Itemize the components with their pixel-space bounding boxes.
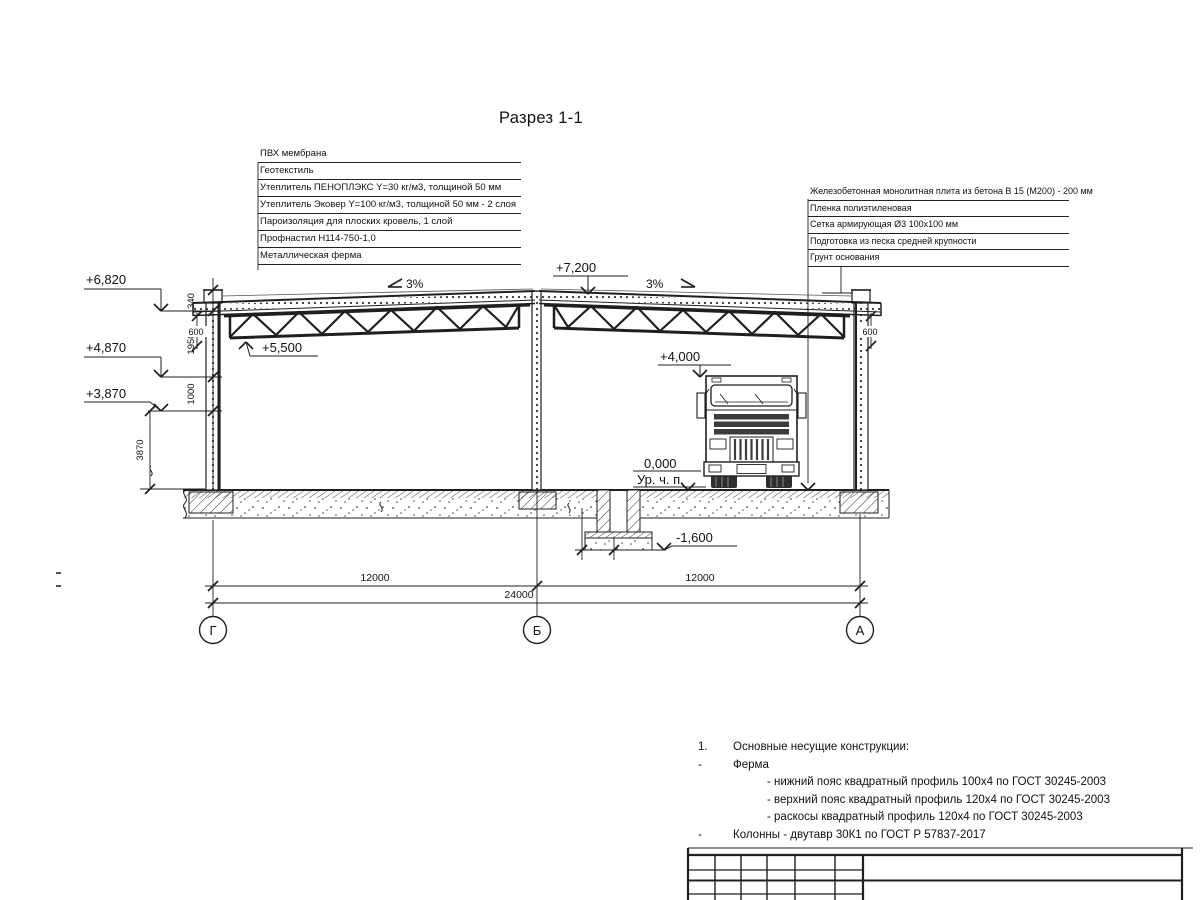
truck-license-plate bbox=[737, 465, 766, 474]
floor-layer-label: Железобетонная монолитная плита из бетон… bbox=[808, 184, 1069, 201]
dim-600-right: 600 bbox=[862, 327, 877, 337]
dim-1000: 1000 bbox=[186, 383, 197, 404]
roof-layer-label: Профнастил Н114-750-1,0 bbox=[258, 231, 521, 248]
floor-layers-callout: Железобетонная монолитная плита из бетон… bbox=[808, 184, 1069, 267]
elevation-ridge: +7,200 bbox=[556, 260, 596, 275]
elevation-pit-bottom: -1,600 bbox=[676, 530, 713, 545]
elevation-floor-zero: 0,000 bbox=[644, 456, 677, 471]
note-sub-top-chord: - верхний пояс квадратный профиль 120х4 … bbox=[698, 792, 1178, 810]
note-sub-braces: - раскосы квадратный профиль 120х4 по ГО… bbox=[698, 809, 1178, 827]
drawing-sheet: +6,820 +4,870 +3,870 +7,200 +5,500 +4,00… bbox=[0, 0, 1200, 900]
note-dash: - bbox=[698, 827, 733, 845]
slope-right-label: 3% bbox=[646, 277, 664, 291]
floor-layer-label: Грунт основания bbox=[808, 250, 1069, 267]
note-number: 1. bbox=[698, 739, 733, 757]
truss-left bbox=[224, 305, 530, 338]
dim-span-right: 12000 bbox=[685, 572, 714, 584]
elevation-parapet-left: +6,820 bbox=[86, 272, 126, 287]
axis-label-b: Б bbox=[533, 623, 542, 638]
axis-label-a: А bbox=[856, 623, 865, 638]
page-title: Разрез 1-1 bbox=[499, 109, 583, 128]
dim-3870: 3870 bbox=[135, 439, 146, 460]
note-heading: Основные несущие конструкции: bbox=[733, 739, 909, 757]
notes-block: 1. Основные несущие конструкции: - Ферма… bbox=[698, 739, 1178, 844]
title-block bbox=[688, 848, 1193, 900]
note-item-truss: Ферма bbox=[733, 757, 769, 775]
note-sub-bottom-chord: - нижний пояс квадратный профиль 100х4 п… bbox=[698, 774, 1178, 792]
stray-mark-2 bbox=[56, 585, 61, 587]
roof-layer-label: Утеплитель ПЕНОПЛЭКС Y=30 кг/м3, толщино… bbox=[258, 180, 521, 197]
truck-grille bbox=[714, 414, 789, 420]
dim-span-left: 12000 bbox=[360, 572, 389, 584]
column-middle bbox=[532, 291, 541, 490]
slope-left-label: 3% bbox=[406, 277, 424, 291]
slope-mark-right bbox=[681, 279, 695, 287]
roof-layer-label: ПВХ мембрана bbox=[258, 146, 521, 163]
truck-windshield bbox=[711, 385, 792, 406]
truck-mirror-left bbox=[697, 393, 705, 418]
floor-layer-label: Сетка армирующая Ø3 100х100 мм bbox=[808, 217, 1069, 234]
elevation-clearance: +4,000 bbox=[660, 349, 700, 364]
floor-layer-label: Пленка полиэтиленовая bbox=[808, 201, 1069, 218]
truck-headlight-right bbox=[777, 439, 793, 449]
dim-340: 340 bbox=[186, 293, 197, 309]
dim-total: 24000 bbox=[504, 589, 533, 601]
floor-layer-label: Подготовка из песка средней крупности bbox=[808, 234, 1069, 251]
slope-mark-left bbox=[388, 279, 402, 287]
truss-right bbox=[544, 305, 850, 338]
dim-600-left: 600 bbox=[188, 327, 203, 337]
roof-layer-label: Утеплитель Эковер Y=100 кг/м3, толщиной … bbox=[258, 197, 521, 214]
floor-slab bbox=[183, 489, 889, 518]
truck-headlight-left bbox=[710, 439, 726, 449]
truck-mirror-right bbox=[798, 393, 806, 418]
truck bbox=[697, 376, 806, 488]
roof-layer-label: Пароизоляция для плоских кровель, 1 слой bbox=[258, 214, 521, 231]
elevation-wall-mark: +3,870 bbox=[86, 386, 126, 401]
roof-layers-callout: ПВХ мембрана Геотекстиль Утеплитель ПЕНО… bbox=[258, 146, 521, 265]
elevation-truss-bottom: +5,500 bbox=[262, 340, 302, 355]
note-d dash: - bbox=[698, 757, 733, 775]
roof-layer-label: Металлическая ферма bbox=[258, 248, 521, 265]
elevation-truss-support: +4,870 bbox=[86, 340, 126, 355]
floor-level-label: Ур. ч. п. bbox=[637, 472, 684, 487]
stray-mark-1 bbox=[56, 572, 61, 574]
roof-layer-label: Геотекстиль bbox=[258, 163, 521, 180]
axis-label-g: Г bbox=[209, 623, 216, 638]
note-item-columns: Колонны - двутавр 30К1 по ГОСТ Р 57837-2… bbox=[733, 827, 986, 845]
